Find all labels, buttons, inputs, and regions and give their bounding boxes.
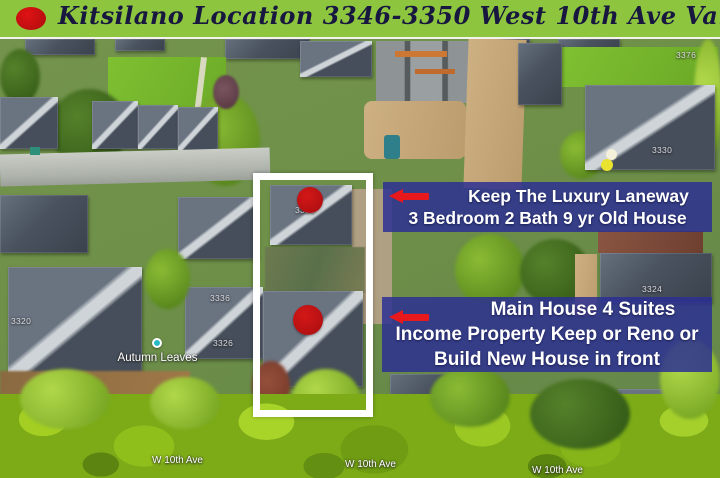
street-label: W 10th Ave — [152, 455, 203, 466]
address-label: 3330 — [652, 145, 672, 155]
address-label: 3324 — [642, 284, 662, 294]
roof — [0, 97, 58, 149]
roof — [178, 197, 258, 259]
annotation-line: Build New House in front — [382, 347, 712, 372]
address-label: 3320 — [11, 316, 31, 326]
tree — [150, 377, 220, 429]
left-arrow-icon — [389, 189, 429, 204]
roof — [178, 107, 218, 151]
roof — [25, 39, 95, 55]
roof — [0, 195, 88, 253]
street-label: W 10th Ave — [345, 459, 396, 470]
annotation-line: Main House 4 Suites — [454, 297, 712, 322]
construction-beam — [395, 51, 447, 57]
place-pin-icon — [152, 338, 162, 348]
satellite-map: 3350 3336 3326 3320 3330 3324 3376 Autum… — [0, 39, 720, 478]
annotation-line: 3 Bedroom 2 Bath 9 yr Old House — [383, 207, 712, 229]
red-marker-main-house — [293, 305, 323, 335]
red-bullet-icon — [16, 7, 46, 30]
roof — [92, 101, 138, 149]
annotation-line: Keep The Luxury Laneway — [445, 185, 712, 207]
address-label: 3326 — [213, 338, 233, 348]
roof-3330 — [585, 85, 715, 170]
annotation-line: Income Property Keep or Reno or — [382, 322, 712, 347]
annotation-box-laneway: Keep The Luxury Laneway 3 Bedroom 2 Bath… — [383, 182, 712, 232]
tarp — [384, 135, 400, 159]
tree — [430, 367, 510, 427]
construction-beam — [415, 69, 455, 74]
brown-roof — [598, 231, 703, 253]
tree — [0, 49, 40, 104]
place-label: Autumn Leaves — [100, 352, 215, 364]
roof — [138, 105, 178, 149]
tree — [530, 379, 630, 449]
roof — [225, 39, 310, 59]
left-arrow-icon — [389, 310, 429, 325]
red-marker-laneway — [297, 187, 323, 213]
street-label: W 10th Ave — [532, 465, 583, 476]
green-bin — [30, 147, 40, 155]
roof-3324 — [600, 253, 712, 303]
tree — [20, 369, 110, 429]
purple-tree — [213, 75, 239, 109]
dirt-pile — [364, 101, 466, 159]
tree — [145, 249, 190, 309]
annotation-box-main-house: Main House 4 Suites Income Property Keep… — [382, 297, 712, 372]
title-bar: Kitsilano Location 3346-3350 West 10th A… — [0, 0, 720, 39]
roof — [300, 41, 372, 77]
address-label: 3376 — [676, 50, 696, 60]
address-label: 3336 — [210, 293, 230, 303]
roof — [115, 39, 165, 51]
page-title: Kitsilano Location 3346-3350 West 10th A… — [58, 1, 713, 30]
roof — [518, 43, 562, 105]
yellow-dot-marker — [601, 159, 613, 171]
listing-image: Kitsilano Location 3346-3350 West 10th A… — [0, 0, 720, 478]
tree — [455, 234, 525, 306]
